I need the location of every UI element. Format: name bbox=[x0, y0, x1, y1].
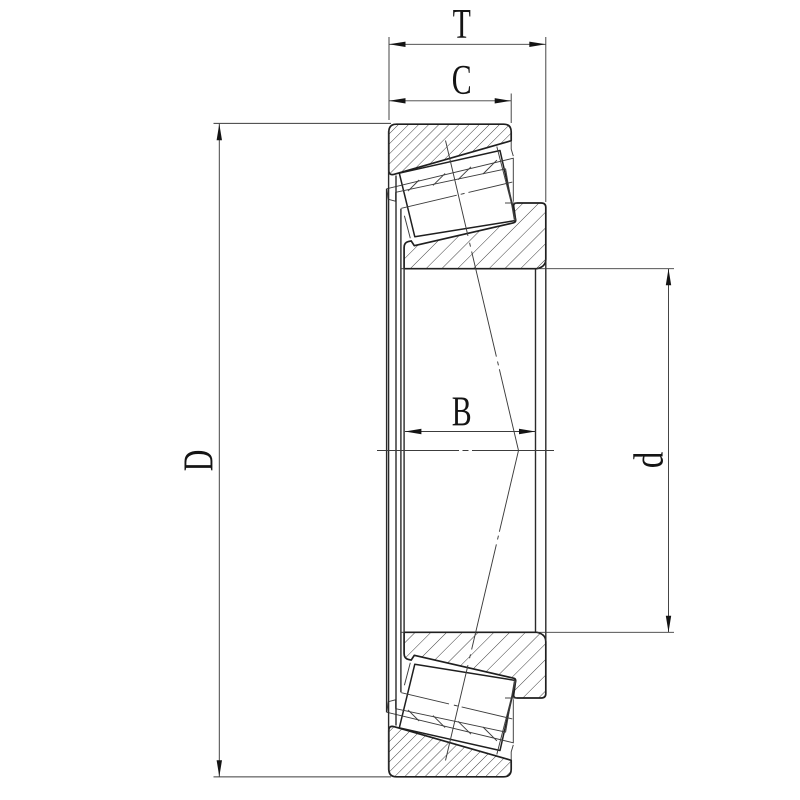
svg-text:D: D bbox=[176, 450, 222, 472]
svg-text:C: C bbox=[452, 57, 472, 103]
svg-text:B: B bbox=[452, 388, 472, 434]
svg-text:d: d bbox=[626, 452, 673, 469]
svg-text:T: T bbox=[453, 1, 471, 47]
